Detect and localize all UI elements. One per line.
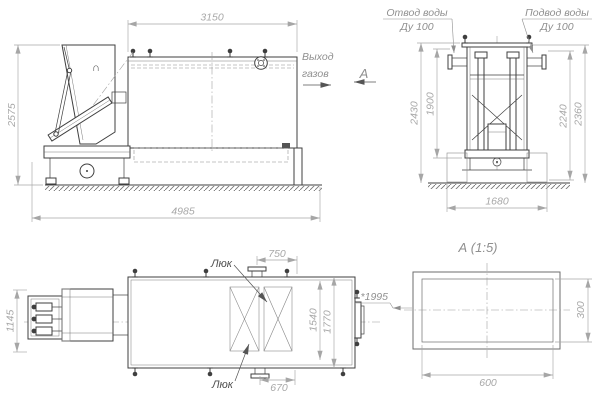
water-outlet-line1: Отвод воды [386,7,448,19]
water-outlet-line2: Ду 100 [399,21,433,33]
dim-2575-label: 2575 [6,103,18,128]
fuel-hopper: ∩ [48,45,133,144]
ref-dim-1995-label: *1995 [361,291,389,303]
dim-1540-label: 1540 [308,308,320,332]
eyebolt-icon [130,49,136,57]
feeder-carriage [44,146,130,184]
gas-outlet-label: Выход газов [302,51,334,85]
gas-outlet-line2: газов [302,68,329,80]
section-view-a: А (1:5) *1995 600 300 [356,240,592,389]
dim-2240-label: 2240 [558,104,570,129]
dim-1770-label: 1770 [322,310,334,334]
view-direction-a: А [354,66,376,82]
hatch-bottom-text: Люк [211,379,234,391]
view-a-label: А [359,66,369,81]
eyebolt-icon [207,368,213,376]
eyebolt-icon [340,368,346,376]
dim-600-label: 600 [479,377,497,389]
end-view: Отвод воды Ду 100 Подвод воды Ду 100 190… [383,7,592,212]
dim-300: 300 [555,279,592,342]
flange-icon [255,57,268,70]
top-view: Люк Люк 750 670 1540 1770 [5,248,381,394]
dim-1900-label: 1900 [425,92,437,116]
boiler-body-side [128,52,302,185]
dim-3150: 3150 [128,12,297,53]
water-outlet-pipe [448,55,467,69]
boiler-installation-drawing: ∩ [0,0,600,400]
eyebolt-icon [462,35,468,43]
water-supply-line2: Ду 100 [539,21,573,33]
hopper-mark: ∩ [92,62,100,74]
lifting-lugs [130,49,268,57]
dim-4985-label: 4985 [171,206,195,218]
water-outlet-label: Отвод воды Ду 100 [383,7,454,53]
water-supply-line1: Подвод воды [525,7,589,19]
support-foot [282,143,290,148]
dim-1900: 1900 [425,49,463,158]
dim-300-label: 300 [575,301,587,319]
side-view: ∩ [6,12,376,223]
eyebolt-icon [132,368,138,376]
section-title: А (1:5) [457,240,497,255]
dim-600: 600 [422,345,553,389]
dim-2575: 2575 [6,45,60,185]
eyebolt-icon [203,269,209,277]
eyebolt-icon [284,269,290,277]
dim-1145-label: 1145 [5,310,17,333]
water-supply-pipe [527,55,546,69]
eyebolt-icon [132,269,138,277]
dim-2240: 2240 [548,51,574,180]
top-pipe-stub [248,267,266,277]
dim-2360-label: 2360 [573,102,585,127]
technical-drawing-sheet: ∩ [0,0,600,400]
eyebolt-icon [262,49,268,57]
eyebolt-icon [227,49,233,57]
dim-670-label: 670 [270,382,288,394]
eyebolt-icon [526,35,532,43]
feeder-plan [28,289,128,341]
eyebolt-icon [147,49,153,57]
dim-2430-label: 2430 [409,101,421,126]
dim-4985: 4985 [32,162,320,222]
dim-1145: 1145 [5,290,28,352]
dim-3150-label: 3150 [200,12,224,24]
gas-outlet-line1: Выход [302,51,334,63]
ref-dim-1995: *1995 [356,291,412,308]
dim-1680-label: 1680 [485,196,509,208]
hatch-top-text: Люк [210,258,233,270]
ground-line [45,185,322,191]
duct-section [404,263,570,358]
dim-750-label: 750 [268,248,286,260]
